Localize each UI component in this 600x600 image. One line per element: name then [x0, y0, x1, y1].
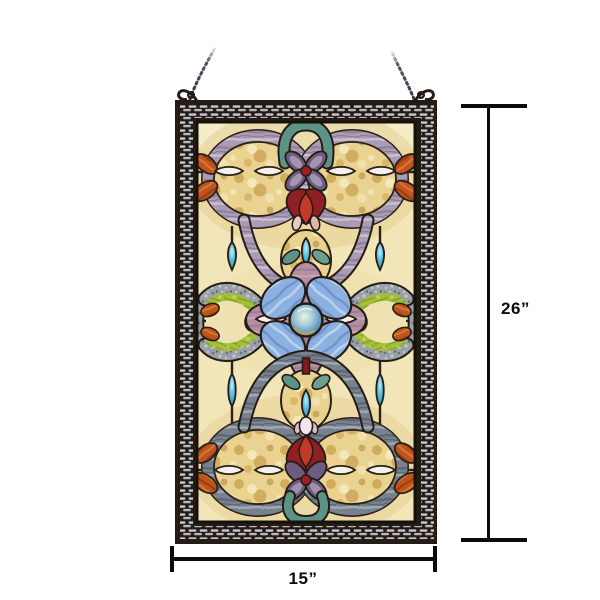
width-dimension-cap-right — [433, 546, 437, 572]
frame-mesh-bottom — [180, 526, 434, 539]
width-dimension-line — [172, 557, 436, 561]
height-dimension-label: 26” — [501, 299, 530, 319]
height-dimension-cap-top — [461, 104, 527, 108]
hanging-chain-left — [190, 46, 216, 99]
frame-mesh-top — [180, 105, 434, 118]
product-image: 26” 15” — [0, 0, 600, 600]
height-dimension-cap-bottom — [461, 538, 527, 542]
height-dimension-line — [487, 105, 490, 541]
frame-mesh-right — [421, 105, 434, 539]
hanging-chain-right — [391, 50, 414, 99]
width-dimension-cap-left — [170, 546, 174, 572]
frame-mesh-left — [180, 105, 193, 539]
width-dimension-label: 15” — [271, 569, 335, 589]
